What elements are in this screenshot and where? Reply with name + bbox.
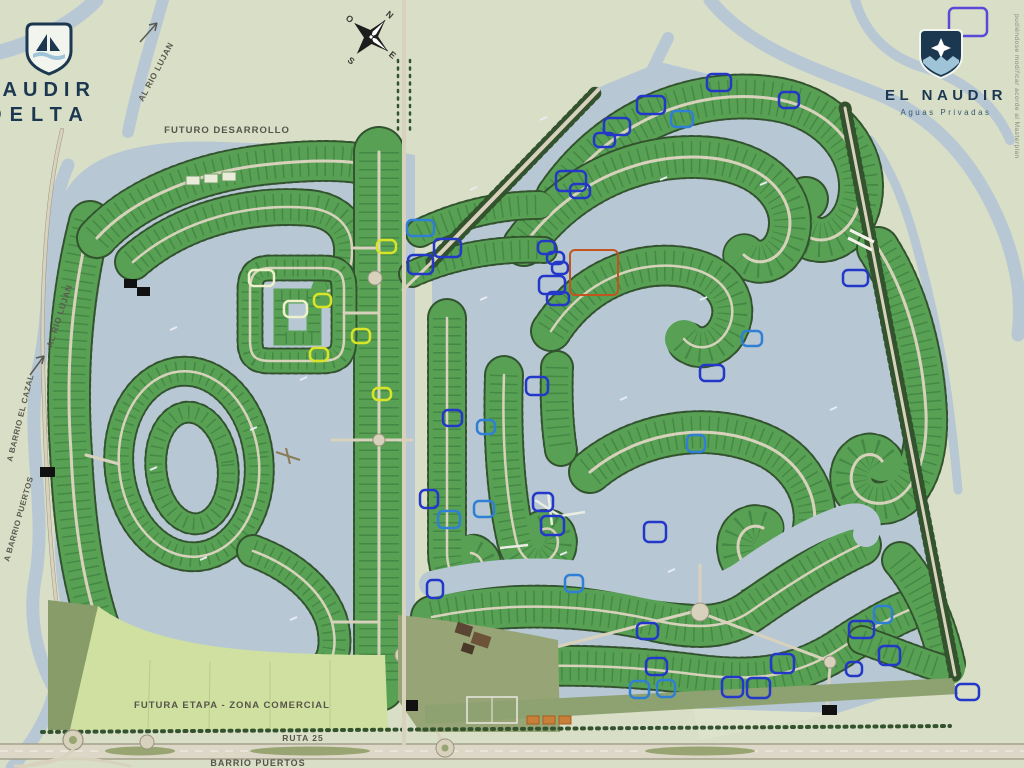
star-shield-icon	[920, 30, 962, 78]
label-futura-etapa: FUTURA ETAPA - ZONA COMERCIAL	[134, 700, 330, 711]
label-futuro-desarrollo: FUTURO DESARROLLO	[164, 125, 290, 136]
label-barrio-puertos: BARRIO PUERTOS	[210, 758, 305, 768]
left-logo-line2: DELTA	[0, 104, 91, 126]
sailboat-shield-icon	[27, 24, 71, 74]
masterplan-map: FUTURO DESARROLLO FUTURA ETAPA - ZONA CO…	[0, 0, 1024, 768]
right-logo-line1: EL NAUDIR	[885, 87, 1007, 104]
amenity-building	[137, 287, 150, 296]
disclaimer-text: pudiéndose modificar acorde al Masterpla…	[1013, 14, 1020, 159]
left-logo-line1: NAUDIR	[0, 79, 96, 101]
amenity-building	[124, 279, 137, 288]
commercial-boxes	[527, 716, 571, 724]
label-ruta-25: RUTA 25	[282, 733, 323, 743]
right-logo-line2: Aguas Privadas	[900, 108, 991, 117]
entrance-gate-southeast	[822, 705, 837, 715]
entrance-gate-west	[40, 467, 55, 477]
terrain-svg: FUTURO DESARROLLO FUTURA ETAPA - ZONA CO…	[0, 0, 1024, 768]
